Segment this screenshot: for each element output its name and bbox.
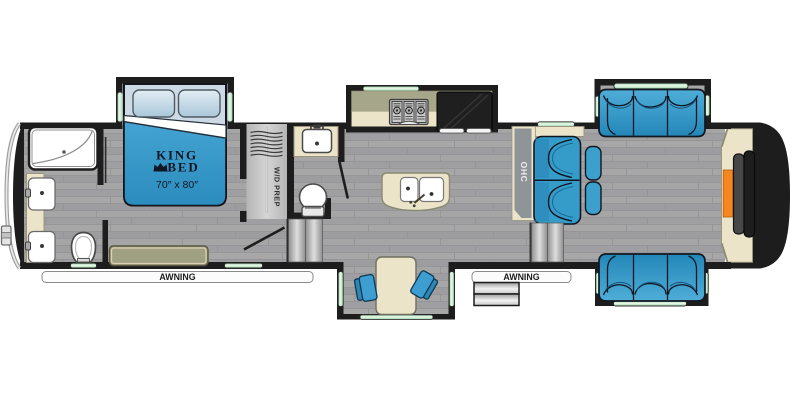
svg-text:OHC: OHC [519,162,529,183]
svg-text:AWNING: AWNING [159,272,195,282]
svg-text:BED: BED [167,160,199,175]
svg-text:70″ x 80″: 70″ x 80″ [156,179,198,191]
svg-text:AWNING: AWNING [503,272,539,282]
svg-text:W/D PREP: W/D PREP [273,167,282,207]
